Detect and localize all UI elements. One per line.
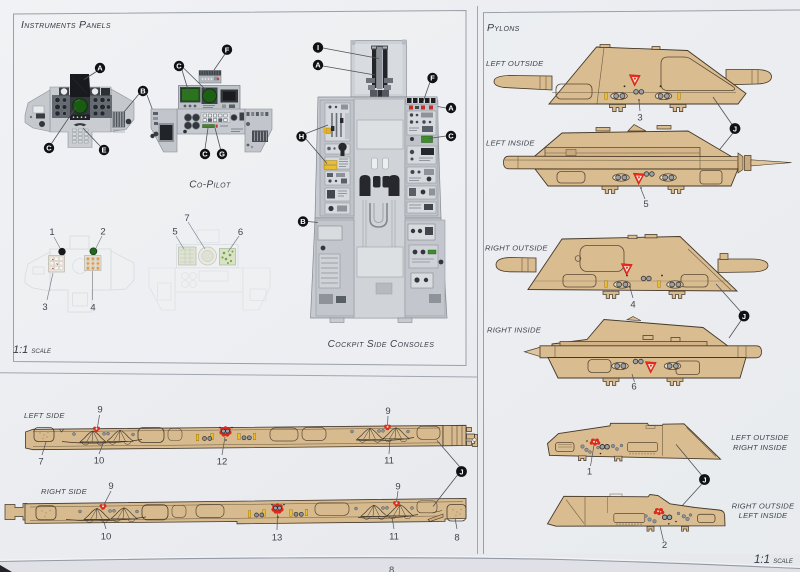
svg-text:G: G [219,150,225,159]
svg-text:2: 2 [662,540,667,551]
svg-text:11: 11 [389,532,399,543]
svg-text:10: 10 [101,532,112,543]
svg-text:RIGHT OUTSIDE: RIGHT OUTSIDE [485,244,548,253]
svg-text:1: 1 [49,227,54,238]
svg-text:5: 5 [643,199,648,210]
svg-text:J: J [733,124,737,133]
svg-text:B: B [300,217,306,226]
svg-text:4: 4 [630,300,635,311]
svg-text:3: 3 [637,113,642,124]
svg-text:1:1 scale: 1:1 scale [754,554,794,566]
svg-text:LEFT OUTSIDE: LEFT OUTSIDE [731,433,789,442]
svg-text:9: 9 [108,481,113,492]
svg-text:J: J [459,467,463,476]
svg-text:Instruments Panels: Instruments Panels [21,19,111,31]
svg-text:Co-Pilot: Co-Pilot [189,180,231,191]
svg-text:H: H [299,132,304,141]
svg-text:I: I [317,43,319,52]
svg-text:F: F [225,45,230,54]
svg-text:A: A [448,104,454,113]
svg-text:C: C [46,144,52,153]
svg-text:1: 1 [587,467,592,478]
svg-text:13: 13 [272,533,283,544]
svg-text:J: J [742,312,746,321]
svg-text:12: 12 [217,457,228,468]
svg-text:5: 5 [172,227,177,238]
svg-text:C: C [176,62,182,71]
svg-text:8: 8 [389,565,394,572]
svg-text:11: 11 [384,456,394,467]
svg-text:B: B [140,87,146,96]
svg-text:7: 7 [184,213,189,224]
svg-text:4: 4 [90,303,95,314]
svg-text:F: F [430,74,435,83]
svg-text:RIGHT INSIDE: RIGHT INSIDE [733,443,788,452]
svg-text:Cockpit Side Consoles: Cockpit Side Consoles [328,339,435,350]
svg-text:3: 3 [42,302,47,313]
svg-text:A: A [315,61,321,70]
svg-text:7: 7 [38,457,43,468]
svg-text:LEFT OUTSIDE: LEFT OUTSIDE [486,59,544,68]
svg-text:10: 10 [94,456,105,467]
svg-text:LEFT INSIDE: LEFT INSIDE [739,511,788,520]
svg-text:LEFT SIDE: LEFT SIDE [24,411,65,420]
svg-text:6: 6 [238,227,243,238]
svg-text:LEFT INSIDE: LEFT INSIDE [486,139,535,148]
svg-text:RIGHT INSIDE: RIGHT INSIDE [487,326,542,335]
svg-text:1:1 scale: 1:1 scale [13,344,52,356]
svg-text:J: J [702,475,706,484]
svg-text:9: 9 [395,482,400,493]
svg-text:A: A [97,64,103,73]
svg-text:C: C [202,150,208,159]
svg-text:E: E [101,146,106,155]
svg-text:9: 9 [97,405,102,416]
svg-text:2: 2 [100,227,105,238]
svg-text:RIGHT OUTSIDE: RIGHT OUTSIDE [732,502,795,511]
svg-text:C: C [448,132,454,141]
svg-text:9: 9 [385,406,390,417]
svg-text:RIGHT SIDE: RIGHT SIDE [41,487,88,496]
svg-text:8: 8 [454,533,459,544]
svg-text:Pylons: Pylons [487,22,520,34]
svg-text:6: 6 [631,382,636,393]
